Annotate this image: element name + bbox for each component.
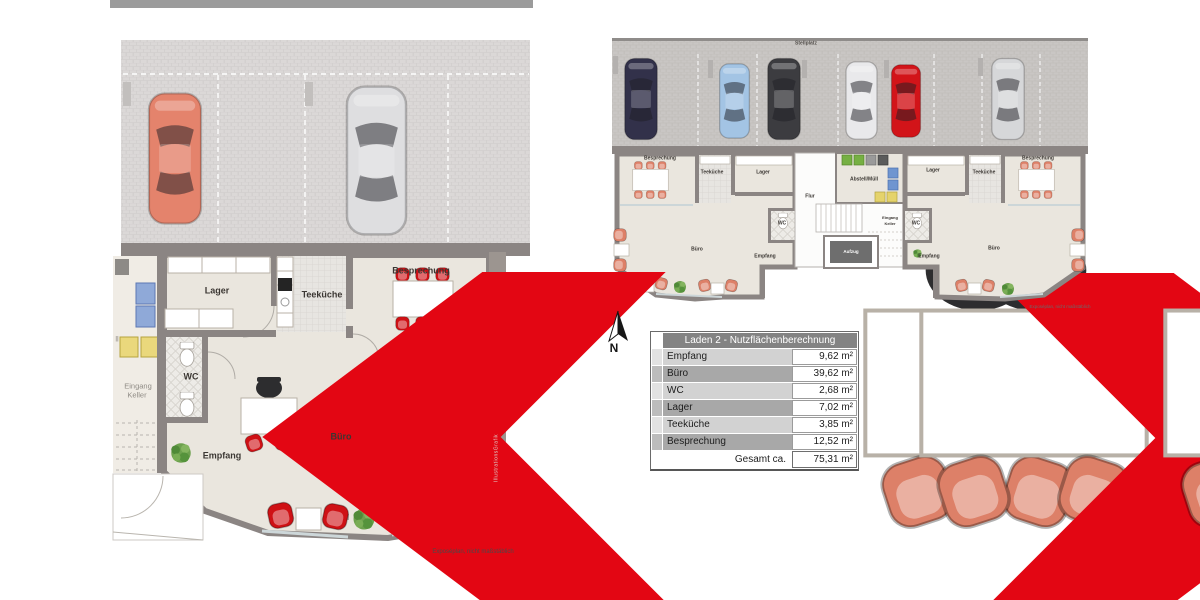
row-value: 2,68 m² <box>792 383 857 399</box>
room-label-teekueche: Teeküche <box>302 291 343 300</box>
meeting-table-icon <box>633 161 669 198</box>
plant-icon <box>171 443 191 463</box>
row-value: 7,02 m² <box>792 400 857 416</box>
yellow-bin-icon <box>141 337 159 357</box>
total-value: 75,31 m² <box>792 451 857 468</box>
table-row: Büro 39,62 m² <box>652 366 857 382</box>
green-bin-icon <box>854 155 864 165</box>
car-silver-icon <box>992 59 1024 140</box>
table-row: WC 2,68 m² <box>652 383 857 399</box>
north-label: N <box>610 342 619 354</box>
yellow-bin-icon <box>875 192 885 202</box>
toilet-icon <box>180 392 194 416</box>
parking-label: Stellplatz <box>795 42 817 47</box>
blue-bin-icon <box>888 168 898 178</box>
room-label-wc: WC <box>184 373 199 382</box>
area-table-title: Laden 2 - Nutzflächenberechnung <box>663 333 857 348</box>
row-label: WC <box>663 383 792 399</box>
ov-right-teekueche: Teeküche <box>973 171 996 176</box>
yellow-bin-icon <box>887 192 897 202</box>
row-label: Teeküche <box>663 417 792 433</box>
blue-bin-icon <box>136 283 155 304</box>
stairs-icon <box>816 204 862 232</box>
ov-right-empfang: Empfang <box>918 255 939 260</box>
row-value: 39,62 m² <box>792 366 857 382</box>
dark-bin-icon <box>878 155 888 165</box>
row-label: Büro <box>663 366 792 382</box>
disclaimer-right: Exposéplan, nicht maßstäblich <box>1029 305 1090 310</box>
ov-core-eingang: Eingang <box>882 216 898 220</box>
ov-right-besprechung: Besprechung <box>1022 157 1054 162</box>
car-orange-icon <box>149 93 201 223</box>
room-label-empfang: Empfang <box>203 452 242 461</box>
exposeplan-page: Lager Teeküche Besprechung WC Büro Empfa… <box>0 0 1200 600</box>
area-table: Laden 2 - Nutzflächenberechnung Empfang … <box>650 331 859 471</box>
table-total-row: Gesamt ca. 75,31 m² <box>652 451 857 468</box>
room-label-lager: Lager <box>205 287 230 296</box>
blue-bin-icon <box>888 180 898 190</box>
ov-left-besprechung: Besprechung <box>644 157 676 162</box>
ov-left-lager: Lager <box>756 171 770 176</box>
ov-right-wc: WC <box>912 222 920 227</box>
room-label-buero: Büro <box>331 433 352 442</box>
plant-icon <box>1002 283 1014 295</box>
plant-icon <box>674 281 686 293</box>
label-eingang: Eingang <box>124 382 152 390</box>
disclaimer-left: Exposéplan, nicht maßstäblich <box>432 549 513 555</box>
table-row: Teeküche 3,85 m² <box>652 417 857 433</box>
table-row: Empfang 9,62 m² <box>652 349 857 365</box>
meeting-table-icon <box>1019 161 1055 198</box>
blue-bin-icon <box>136 306 155 327</box>
room-label-besprechung: Besprechung <box>392 267 450 276</box>
label-keller: Keller <box>127 391 146 399</box>
car-silver-icon <box>347 87 406 235</box>
ov-core-aufzug: Aufzug <box>843 250 858 255</box>
car-red-icon <box>892 65 921 137</box>
gray-bin-icon <box>866 155 876 165</box>
row-value: 3,85 m² <box>792 417 857 433</box>
ov-left-teekueche: Teeküche <box>701 171 724 176</box>
total-label: Gesamt ca. <box>652 451 792 468</box>
row-label: Empfang <box>663 349 792 365</box>
ov-core-flur: Flur <box>805 195 814 200</box>
appliance-icon <box>278 278 292 291</box>
detail-parking <box>121 40 530 243</box>
ov-core-keller: Keller <box>884 222 895 226</box>
overview-parking <box>612 38 1088 148</box>
table-row: Lager 7,02 m² <box>652 400 857 416</box>
green-bin-icon <box>842 155 852 165</box>
ov-core-abstell: Abstell/Müll <box>850 178 878 183</box>
sink-icon <box>180 342 194 366</box>
row-value: 9,62 m² <box>792 349 857 365</box>
ov-left-wc: WC <box>778 222 786 227</box>
car-black-icon <box>768 59 800 140</box>
row-label: Lager <box>663 400 792 416</box>
row-value: 12,52 m² <box>792 434 857 450</box>
car-white-icon <box>846 62 877 139</box>
ov-left-empfang: Empfang <box>754 255 775 260</box>
table-row: Besprechung 12,52 m² <box>652 434 857 450</box>
floorplans-graphic <box>0 0 1200 600</box>
ov-right-lager: Lager <box>926 169 940 174</box>
ov-right-buero: Büro <box>988 247 1000 252</box>
car-blue-icon <box>720 64 750 138</box>
label-fragment: ll <box>115 335 118 343</box>
top-wall-bar <box>110 0 533 8</box>
watermark-text: IllustrationsGrafik <box>495 434 500 482</box>
vestibule <box>113 474 203 540</box>
yellow-bin-icon <box>120 337 138 357</box>
car-navy-icon <box>625 59 657 140</box>
detail-corridor <box>113 256 165 473</box>
ov-left-buero: Büro <box>691 248 703 253</box>
row-label: Besprechung <box>663 434 792 450</box>
